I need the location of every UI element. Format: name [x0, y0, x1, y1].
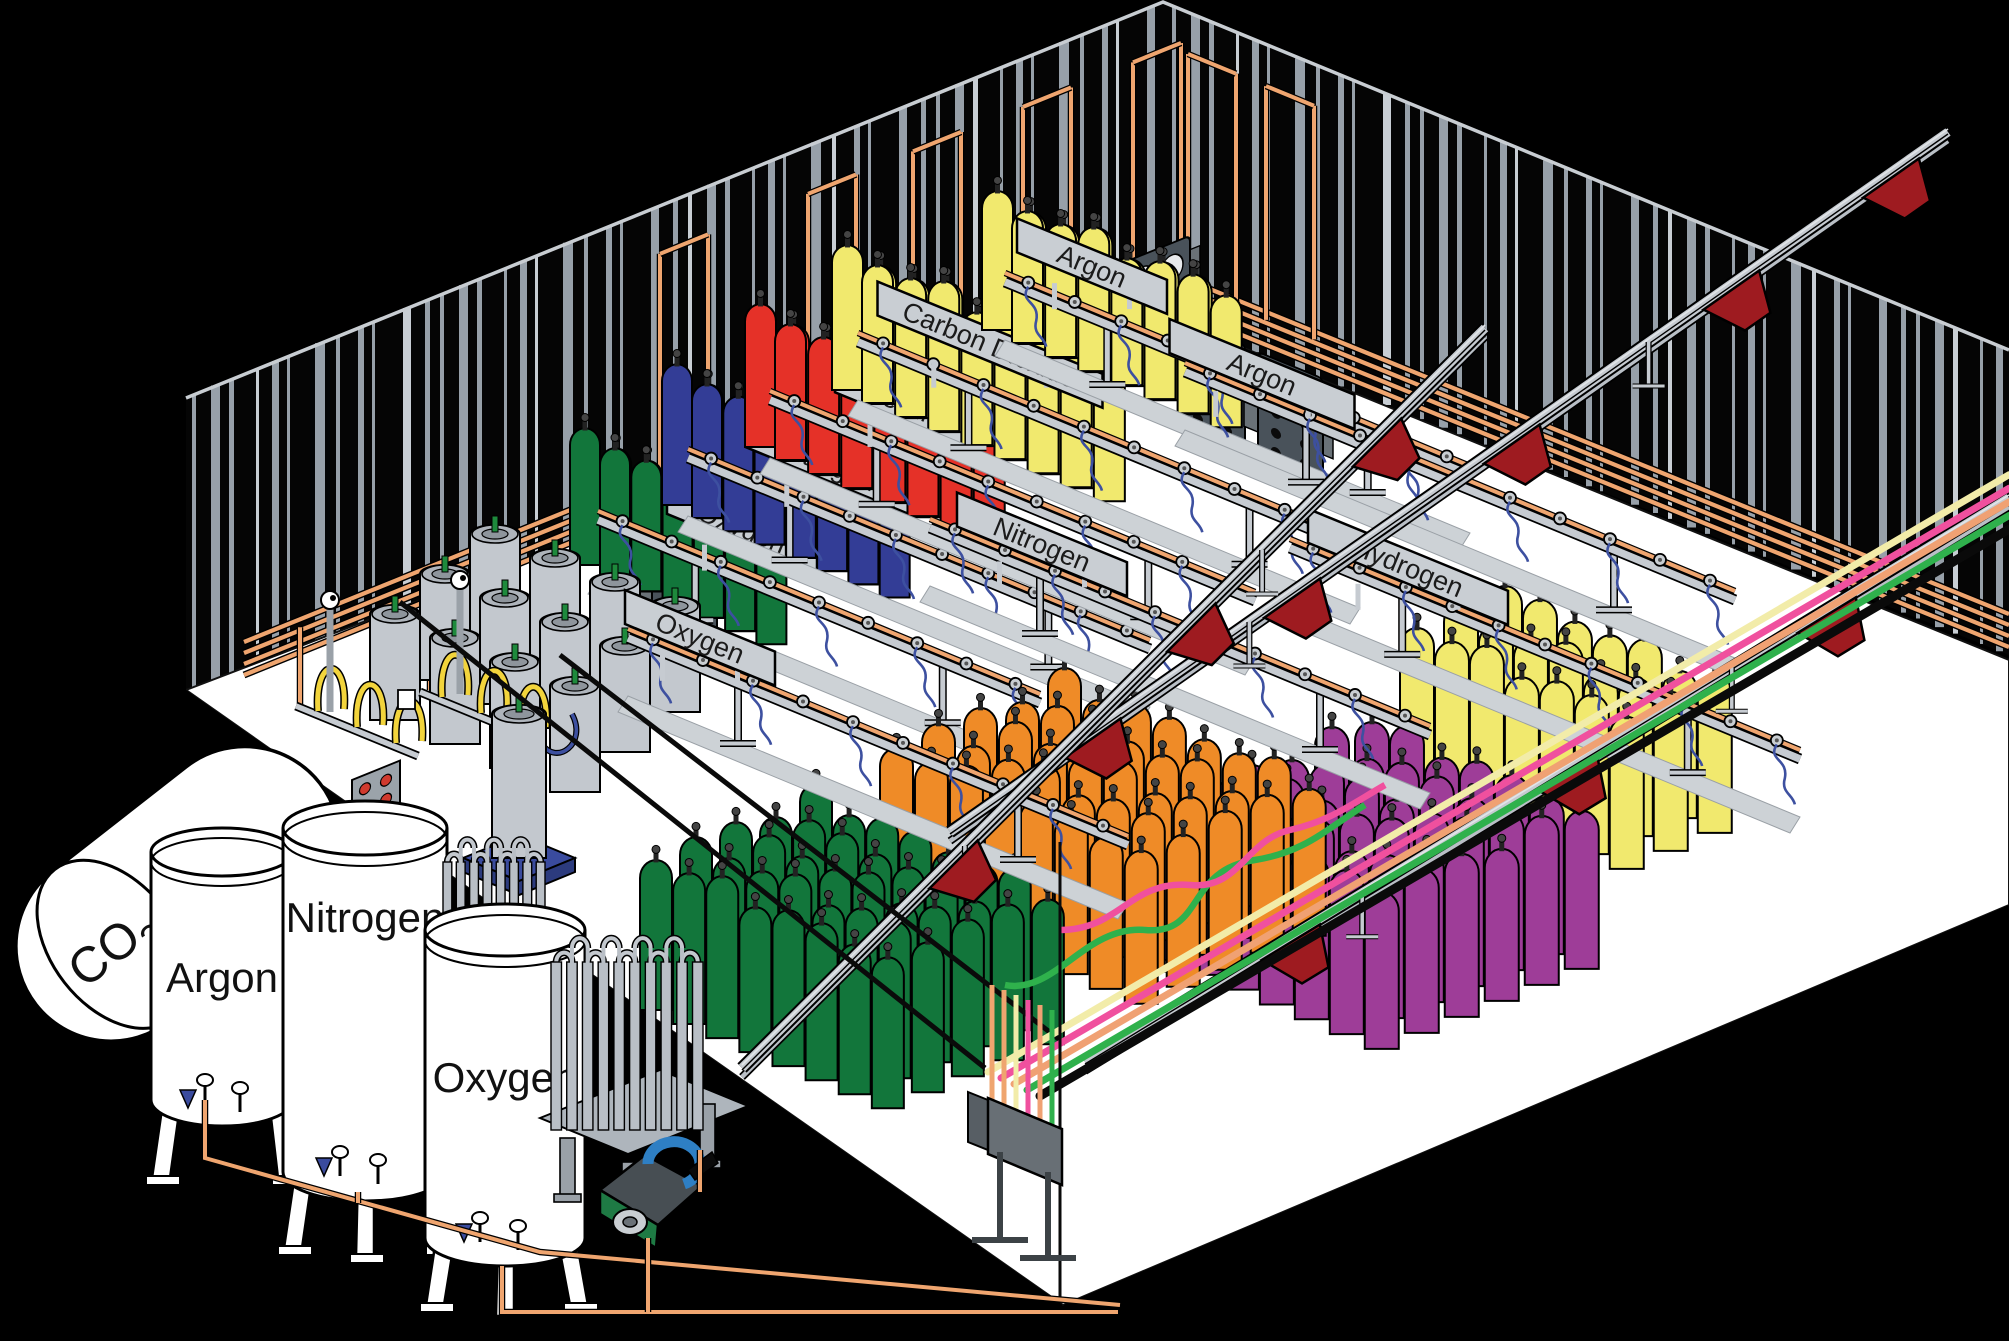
argon-tank-label: Argon	[166, 954, 278, 1001]
gas-plant-illustration: OxygenNitrogenHeliumCarbon DioxideArgon …	[0, 0, 2009, 1341]
nitrogen-tank-label: Nitrogen	[286, 894, 445, 941]
